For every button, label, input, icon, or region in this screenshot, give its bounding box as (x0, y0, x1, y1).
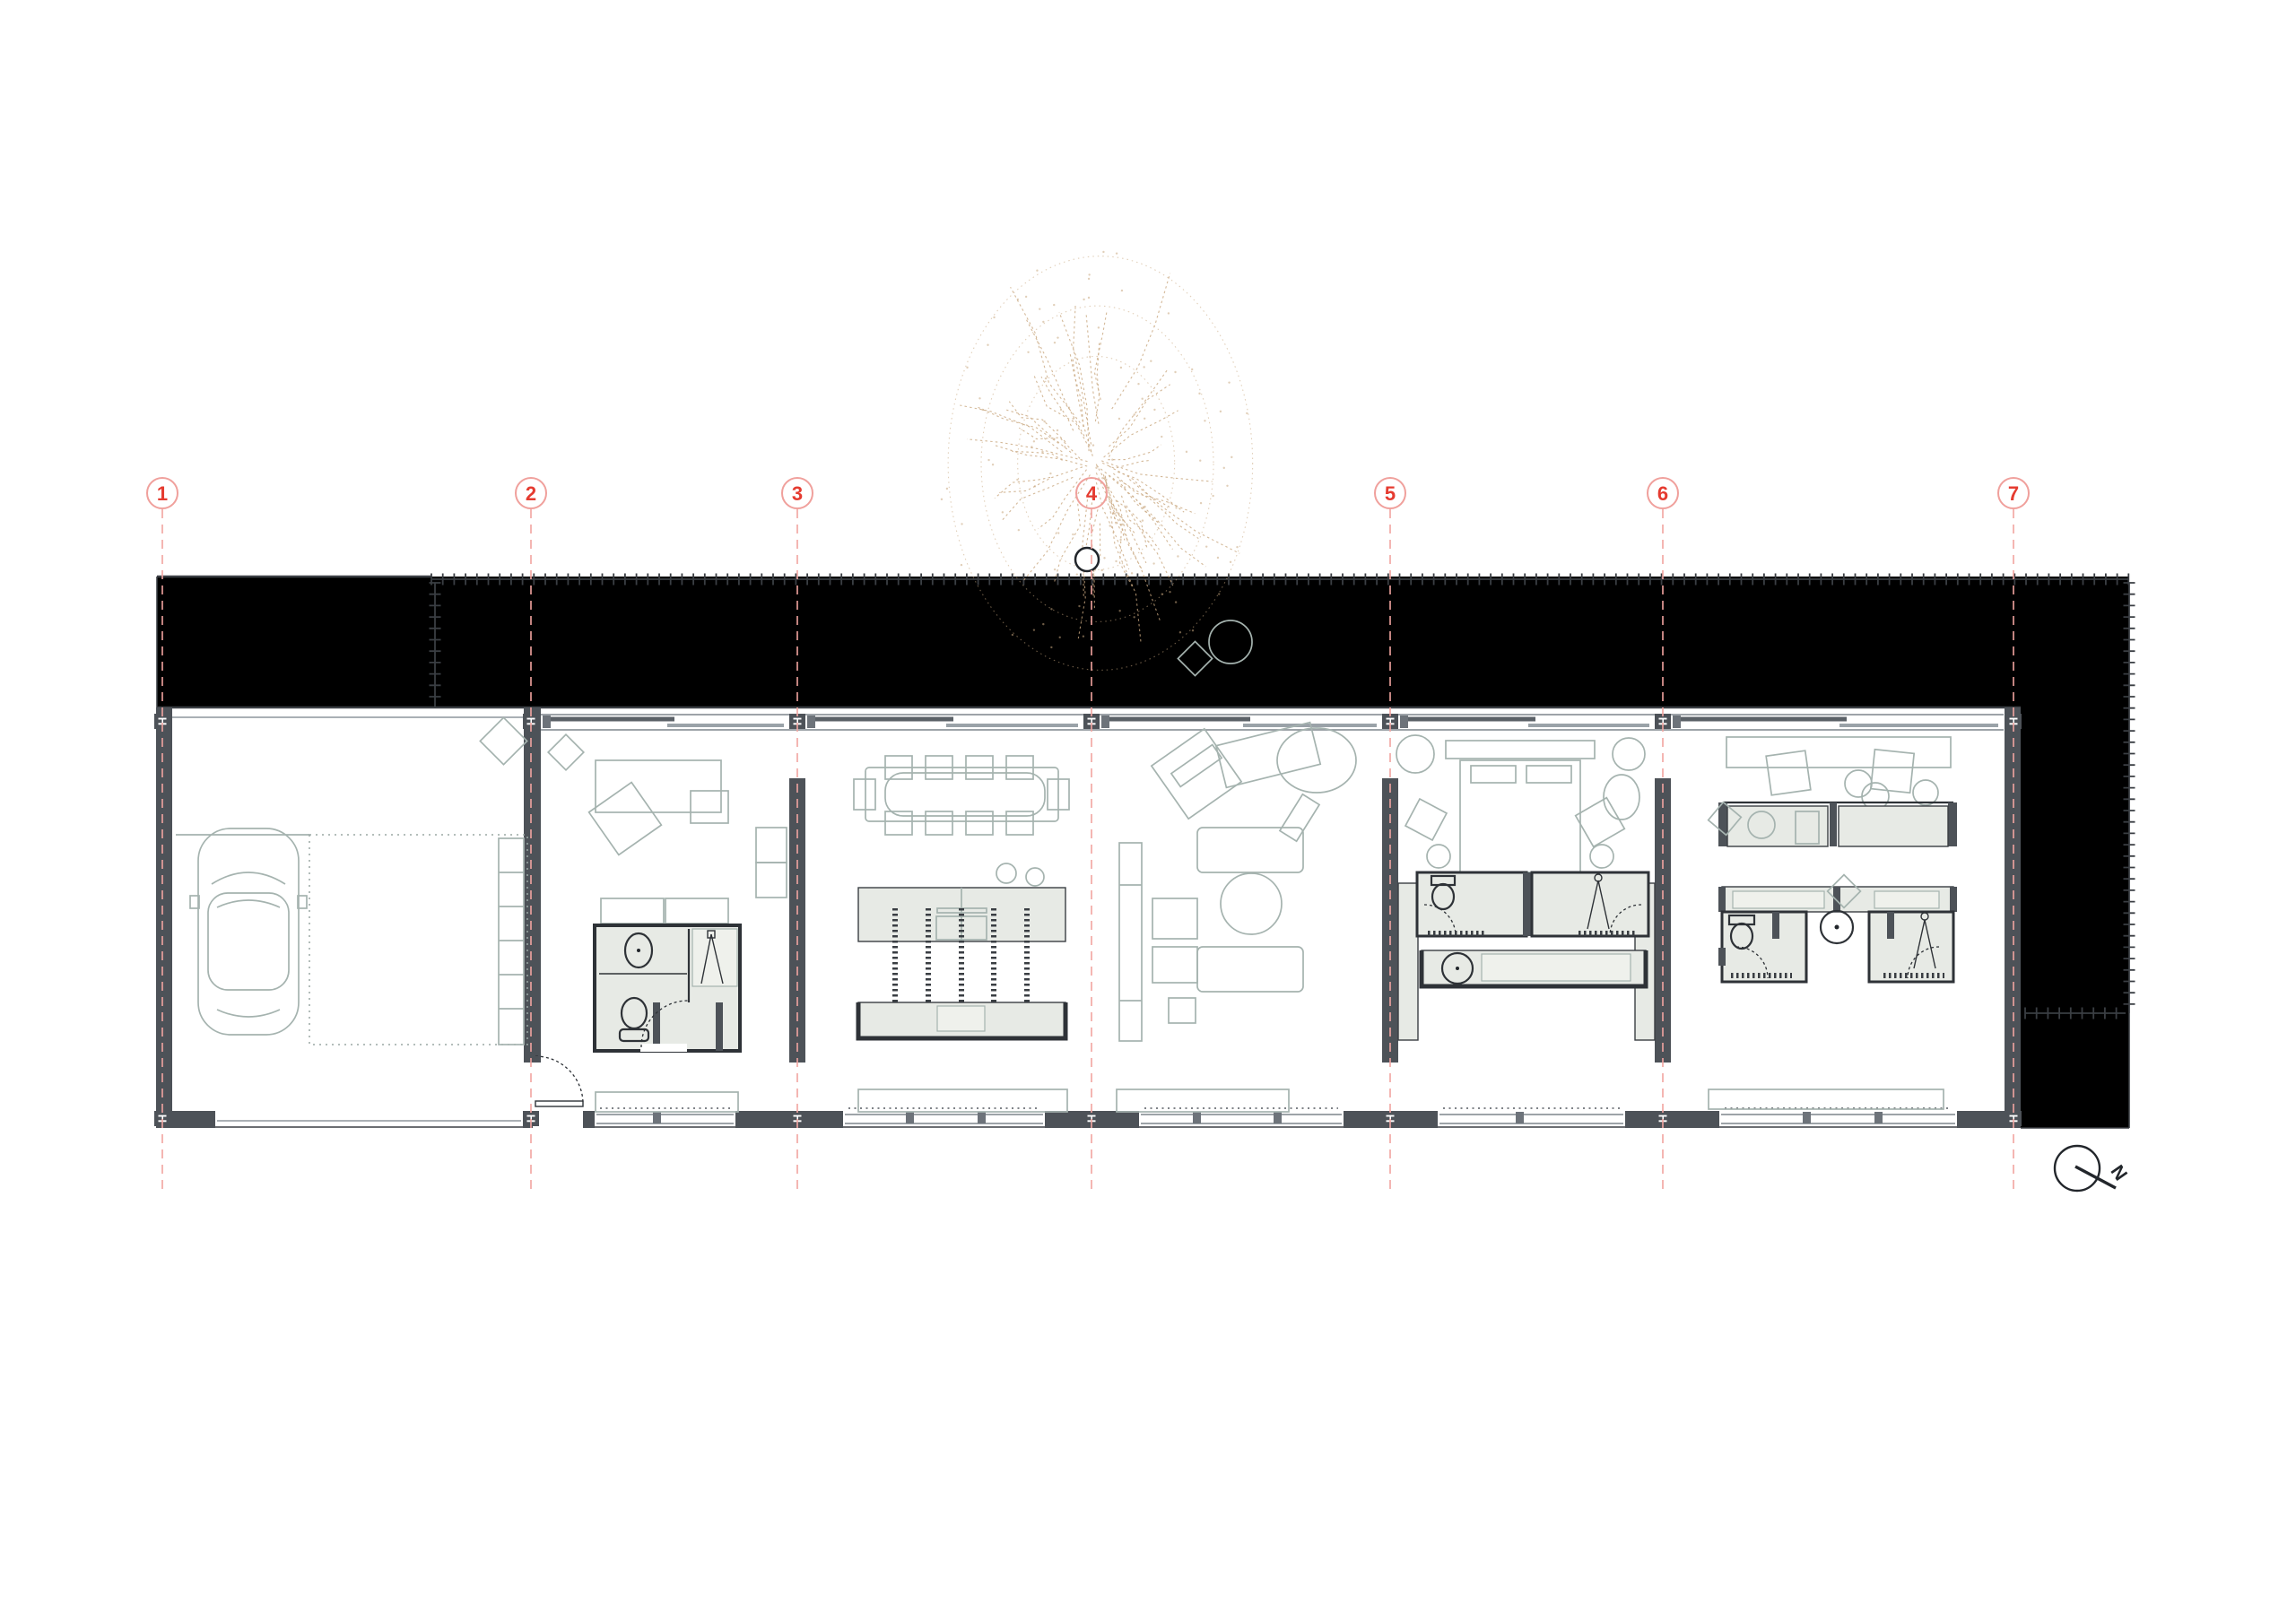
side-table (1152, 947, 1197, 983)
entry-pendant (480, 717, 526, 764)
leaf-dot (1095, 467, 1097, 469)
leaf-dot (1101, 569, 1103, 571)
pod-door-opening (640, 1044, 687, 1052)
branch (977, 407, 1058, 444)
leaf-dot (1050, 646, 1052, 648)
branch (1112, 273, 1170, 409)
chair (1405, 799, 1447, 840)
leaf-dot (1175, 601, 1177, 603)
floor-plan-page: HHHHHHHHHHHHHH1234567N (0, 0, 2296, 1622)
leaf-dot (1169, 591, 1170, 593)
armchair-seat (1171, 745, 1222, 787)
rect (1733, 891, 1824, 908)
leaf-dot (1025, 296, 1027, 298)
side-table (1427, 845, 1450, 868)
branch (967, 439, 1088, 462)
leaf-dot (1153, 409, 1155, 411)
leaf-dot (1041, 451, 1043, 453)
layer-furniture (176, 717, 1957, 1112)
rect (937, 1006, 985, 1031)
wall-gridline-1 (156, 707, 172, 1128)
leaf-dot (1088, 273, 1090, 275)
branch (1054, 504, 1080, 585)
leaf-dot (1226, 485, 1228, 487)
stool (1169, 998, 1196, 1023)
deck-hatch-right (2021, 707, 2129, 1128)
leaf-dot (1236, 546, 1238, 548)
rect (1193, 1112, 1201, 1123)
leaf-dot (1118, 610, 1120, 612)
entry-pendant (548, 734, 584, 770)
leaf-dot (1072, 533, 1074, 535)
canopy-ring (1018, 356, 1175, 569)
branch (995, 477, 1050, 498)
leaf-dot (1121, 524, 1123, 525)
leaf-dot (1144, 506, 1145, 507)
entry-door-opening (533, 1111, 583, 1128)
round-rug (1277, 728, 1356, 793)
wall-garage (524, 707, 541, 1063)
bed1-side-table (691, 791, 728, 823)
branch (1019, 428, 1080, 458)
leaf-dot (987, 459, 989, 461)
leaf-dot (1230, 561, 1231, 563)
sofa (1197, 828, 1303, 872)
leaf-dot (1223, 467, 1225, 469)
leaf-dot (1054, 568, 1056, 570)
grid-bubble-label-4: 4 (1086, 482, 1098, 505)
leaf-dot (1033, 629, 1035, 630)
leaf-dot (1083, 635, 1084, 637)
rect (978, 1112, 986, 1123)
car-body (198, 828, 299, 1035)
leaf-dot (1212, 495, 1213, 497)
leaf-dot (1068, 406, 1070, 408)
leaf-dot (1131, 572, 1133, 574)
closet-bed2-left (1398, 883, 1418, 1040)
leaf-dot (978, 397, 980, 399)
leaf-dot (1018, 529, 1020, 531)
rect (1772, 912, 1779, 939)
grid-bubble-label-2: 2 (526, 482, 536, 505)
leaf-dot (1033, 440, 1035, 442)
leaf-dot (1205, 545, 1207, 547)
canopy-ring (981, 306, 1213, 621)
pergola-hatch-top (157, 577, 2129, 707)
bed2-headboard (1446, 741, 1595, 759)
master-wardrobe (1839, 806, 1948, 846)
leaf-dot (1228, 381, 1230, 383)
leaf-dot (993, 317, 995, 318)
leaf-dot (1134, 413, 1135, 415)
layer-deck (157, 574, 2135, 1129)
leaf-dot (1231, 456, 1232, 458)
grid-bubble-label-5: 5 (1385, 482, 1396, 505)
bed1-throw (589, 783, 662, 855)
leaf-dot (1218, 593, 1220, 594)
leaf-dot (1120, 367, 1122, 369)
leaf-dot (1114, 512, 1116, 514)
leaf-dot (1092, 444, 1094, 446)
leaf-dot (1088, 278, 1090, 280)
leaf-dot (1143, 366, 1144, 368)
leaf-dot (1142, 398, 1144, 400)
leaf-dot (1200, 502, 1202, 504)
plant (1613, 738, 1645, 770)
plant (1396, 735, 1434, 773)
leaf-dot (946, 488, 948, 490)
leaf-dot (1116, 252, 1118, 254)
leaf-dot (982, 409, 984, 411)
dining-chair (966, 811, 993, 835)
leaf-dot (1036, 270, 1038, 272)
leaf-dot (1198, 393, 1200, 395)
leaf-dot (1039, 308, 1040, 309)
chair (1871, 750, 1914, 793)
car-hood (212, 872, 285, 884)
leaf-dot (1045, 377, 1047, 379)
leaf-dot (1186, 451, 1187, 453)
leaf-dot (1076, 573, 1078, 575)
chair (1766, 750, 1811, 795)
master-shower-pod (1869, 912, 1953, 982)
daybed (1216, 723, 1320, 788)
north-label: N (2107, 1161, 2132, 1184)
garage-shelves (499, 838, 524, 1045)
branch (1094, 311, 1107, 400)
leaf-dot (1142, 519, 1144, 521)
rect (716, 1002, 723, 1051)
pillow (1471, 766, 1516, 783)
rect (653, 1002, 660, 1051)
leaf-dot (1083, 299, 1084, 300)
leaf-dot (1177, 555, 1178, 557)
entry-door-hinge (528, 1056, 539, 1063)
grid-bubble-label-3: 3 (792, 482, 803, 505)
bed2-bed (1460, 760, 1580, 872)
parking-bay-marking (309, 835, 527, 1045)
rect (1948, 802, 1957, 846)
rect (1874, 891, 1939, 908)
bed1-wardrobe (756, 828, 787, 863)
leaf-dot (1002, 511, 1004, 513)
leaf-dot (1057, 336, 1058, 338)
rect (1874, 1112, 1883, 1123)
leaf-dot (941, 499, 943, 500)
pillow (1526, 766, 1571, 783)
leaf-dot (1168, 312, 1170, 314)
leaf-dot (1050, 608, 1052, 610)
leaf-dot (1043, 421, 1045, 422)
leaf-dot (1012, 634, 1013, 636)
leaf-dot (1217, 557, 1219, 559)
rect (1830, 802, 1837, 846)
leaf-dot (1204, 420, 1205, 421)
leaf-dot (1192, 629, 1194, 631)
branch (1129, 480, 1239, 554)
leaf-dot (1144, 418, 1145, 420)
grid-bubble-label-6: 6 (1657, 482, 1668, 505)
entry-door-leaf (535, 1101, 583, 1106)
rect (543, 716, 551, 728)
branch (1006, 410, 1071, 452)
leaf-dot (1016, 479, 1018, 481)
leaf-dot (1101, 477, 1103, 479)
facade-segment (1625, 1111, 1719, 1128)
branch (1011, 287, 1081, 422)
rect (1673, 716, 1681, 728)
leaf-dot (1152, 562, 1154, 564)
leaf-dot (1103, 557, 1105, 559)
leaf-dot (1175, 507, 1177, 508)
master-desk (1726, 737, 1951, 768)
leaf-dot (1042, 623, 1044, 625)
leaf-dot (1161, 436, 1162, 438)
leaf-dot (1031, 446, 1032, 447)
tree-trunk (1075, 548, 1099, 571)
branch (999, 467, 1083, 493)
branch (1073, 358, 1092, 455)
rect (1101, 716, 1109, 728)
leaf-dot (1133, 616, 1135, 618)
bed1-wardrobe (756, 863, 787, 898)
leaf-dot (987, 344, 988, 346)
leaf-dot (1042, 321, 1044, 323)
chair (1604, 775, 1639, 820)
branch (1119, 481, 1199, 539)
bed2-shower-pod (1532, 872, 1648, 936)
branch (995, 446, 1087, 466)
grid-bubble-label-1: 1 (157, 482, 168, 505)
leaf-dot (1060, 409, 1062, 411)
rect (653, 1112, 661, 1123)
dining-chair (1006, 811, 1033, 835)
sideboard (1119, 843, 1142, 1041)
leaf-dot (1102, 251, 1104, 253)
rect (1803, 1112, 1811, 1123)
leaf-dot (1034, 485, 1036, 487)
leaf-dot (1057, 429, 1058, 431)
leaf-dot (1179, 631, 1181, 633)
rect (1482, 954, 1631, 981)
rect (807, 716, 815, 728)
sofa (1197, 947, 1303, 992)
leaf-dot (1137, 383, 1139, 385)
leaf-dot (1199, 459, 1201, 461)
leaf-dot (1161, 594, 1163, 595)
rect (1887, 912, 1894, 939)
rect (1833, 887, 1840, 912)
leaf-dot (1054, 342, 1056, 343)
leaf-dot (1115, 560, 1117, 562)
rect (1718, 948, 1726, 966)
rect (1950, 887, 1957, 912)
car-rear-window (217, 1010, 280, 1017)
bed1-cabinet (665, 898, 728, 924)
leaf-dot (966, 367, 968, 369)
leaf-dot (1118, 418, 1120, 420)
leaf-dot (992, 464, 994, 465)
rect (906, 1112, 914, 1123)
rect (1516, 1112, 1524, 1123)
floor-plan-drawing: HHHHHHHHHHHHHH1234567N (0, 0, 2296, 1622)
leaf-dot (1121, 290, 1123, 291)
entry-door-swing (535, 1056, 583, 1104)
leaf-dot (1064, 446, 1065, 447)
stool (996, 863, 1016, 883)
branch (1034, 375, 1092, 453)
rect (1400, 716, 1408, 728)
coffee-table (1221, 873, 1282, 934)
leaf-dot (1109, 525, 1110, 526)
leaf-dot (1098, 326, 1100, 328)
leaf-dot (1053, 304, 1055, 306)
leaf-dot (961, 523, 962, 525)
leaf-dot (1119, 539, 1121, 541)
side-table (1152, 898, 1197, 939)
master-bench (1709, 1089, 1944, 1109)
dining-chair (926, 811, 952, 835)
branch (1002, 477, 1073, 520)
rect (1718, 887, 1726, 912)
rect (1274, 1112, 1282, 1123)
leaf-dot (1191, 369, 1193, 370)
leaf-dot (1246, 412, 1248, 414)
stool (1913, 780, 1938, 805)
leaf-dot (1150, 360, 1152, 362)
leaf-dot (1049, 473, 1051, 474)
leaf-dot (1027, 351, 1029, 353)
leaf-dot (961, 564, 962, 566)
ottoman (1576, 798, 1625, 847)
car-cabin (208, 893, 289, 990)
leaf-dot (1124, 486, 1126, 488)
leaf-dot (1017, 299, 1019, 300)
circle (1456, 967, 1459, 970)
dining-chair-end (854, 779, 875, 810)
stool (1845, 770, 1872, 797)
leaf-dot (1174, 371, 1176, 373)
branch (1086, 314, 1099, 424)
leaf-dot (1072, 418, 1074, 420)
rect (1718, 802, 1727, 846)
wall-gridline-7 (2005, 707, 2021, 1128)
leaf-dot (1078, 605, 1080, 607)
circle (637, 949, 640, 952)
side-table (1590, 845, 1613, 868)
stool (1026, 868, 1044, 886)
branch (960, 405, 1062, 452)
bed1-bed (596, 760, 721, 812)
branch (1009, 402, 1065, 442)
circle (1835, 925, 1839, 930)
grid-bubble-label-7: 7 (2008, 482, 2019, 505)
leaf-dot (1111, 459, 1113, 461)
car-windshield (217, 900, 280, 907)
leaf-dot (1088, 297, 1090, 299)
leaf-dot (1059, 637, 1061, 638)
leaf-dot (1057, 532, 1059, 533)
bed1-cabinet (601, 898, 664, 924)
side-table (1280, 794, 1319, 841)
leaf-dot (1220, 411, 1222, 412)
